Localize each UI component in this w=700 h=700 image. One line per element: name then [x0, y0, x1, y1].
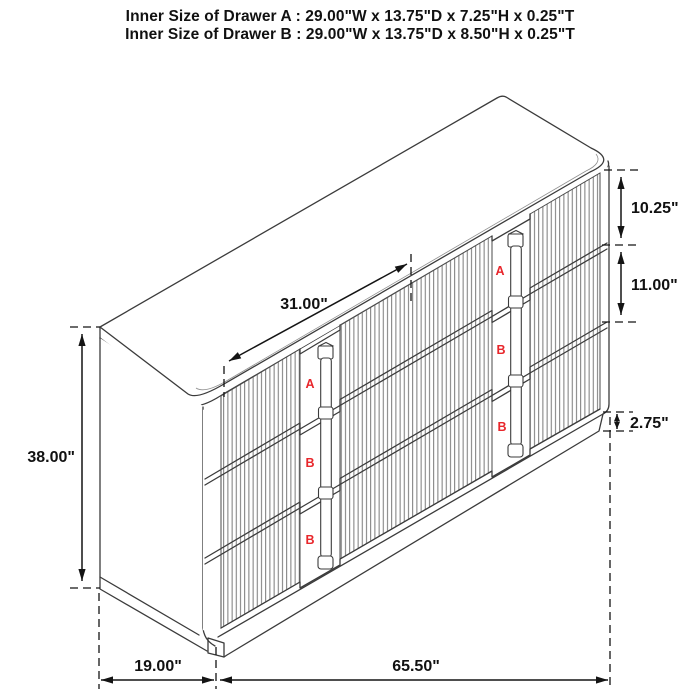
- drawer-label-left-b1: B: [305, 456, 314, 470]
- dresser-line-drawing: A B B A B B 38.00" 19.00": [0, 0, 700, 700]
- fluted-section-left: [221, 349, 300, 628]
- drawer-label-right-b1: B: [496, 343, 505, 357]
- cabinet: A B B A B B: [100, 96, 609, 657]
- dim-middle-drawer: 11.00": [602, 252, 678, 322]
- handle-left-cap: [318, 346, 333, 359]
- left-side-panel: [100, 338, 214, 646]
- fluted-section-middle: [340, 236, 492, 559]
- dim-top-drawer: 10.25": [602, 170, 679, 245]
- dim-depth-label: 19.00": [134, 658, 182, 675]
- handle-right-joint-1: [509, 296, 524, 308]
- handle-right: [508, 231, 523, 458]
- drawer-label-left-a: A: [305, 377, 314, 391]
- drawer-label-right-a: A: [495, 264, 504, 278]
- handle-left-foot: [318, 556, 333, 569]
- dim-base-label: 2.75": [630, 415, 669, 432]
- handle-left-joint-2: [319, 487, 334, 499]
- handle-right-joint-2: [509, 375, 524, 387]
- dim-base: 2.75": [603, 412, 669, 432]
- handle-left-rod: [321, 358, 332, 557]
- fluted-section-right: [530, 173, 600, 449]
- handle-left-joint-1: [319, 407, 334, 419]
- dim-overall-height: 38.00": [27, 327, 100, 588]
- dim-height-label: 38.00": [27, 449, 75, 466]
- handle-right-foot: [508, 444, 523, 457]
- handle-right-cap: [508, 234, 523, 247]
- dim-top-drawer-label: 10.25": [631, 200, 679, 217]
- drawer-label-right-b2: B: [497, 420, 506, 434]
- handle-right-rod: [511, 246, 522, 445]
- furniture-dimension-diagram: Inner Size of Drawer A : 29.00"W x 13.75…: [0, 0, 700, 700]
- dim-width-label: 65.50": [392, 658, 440, 675]
- drawer-label-left-b2: B: [305, 533, 314, 547]
- dim-top-width-label: 31.00": [280, 296, 328, 313]
- handle-left: [318, 343, 333, 570]
- dim-middle-drawer-label: 11.00": [631, 277, 678, 294]
